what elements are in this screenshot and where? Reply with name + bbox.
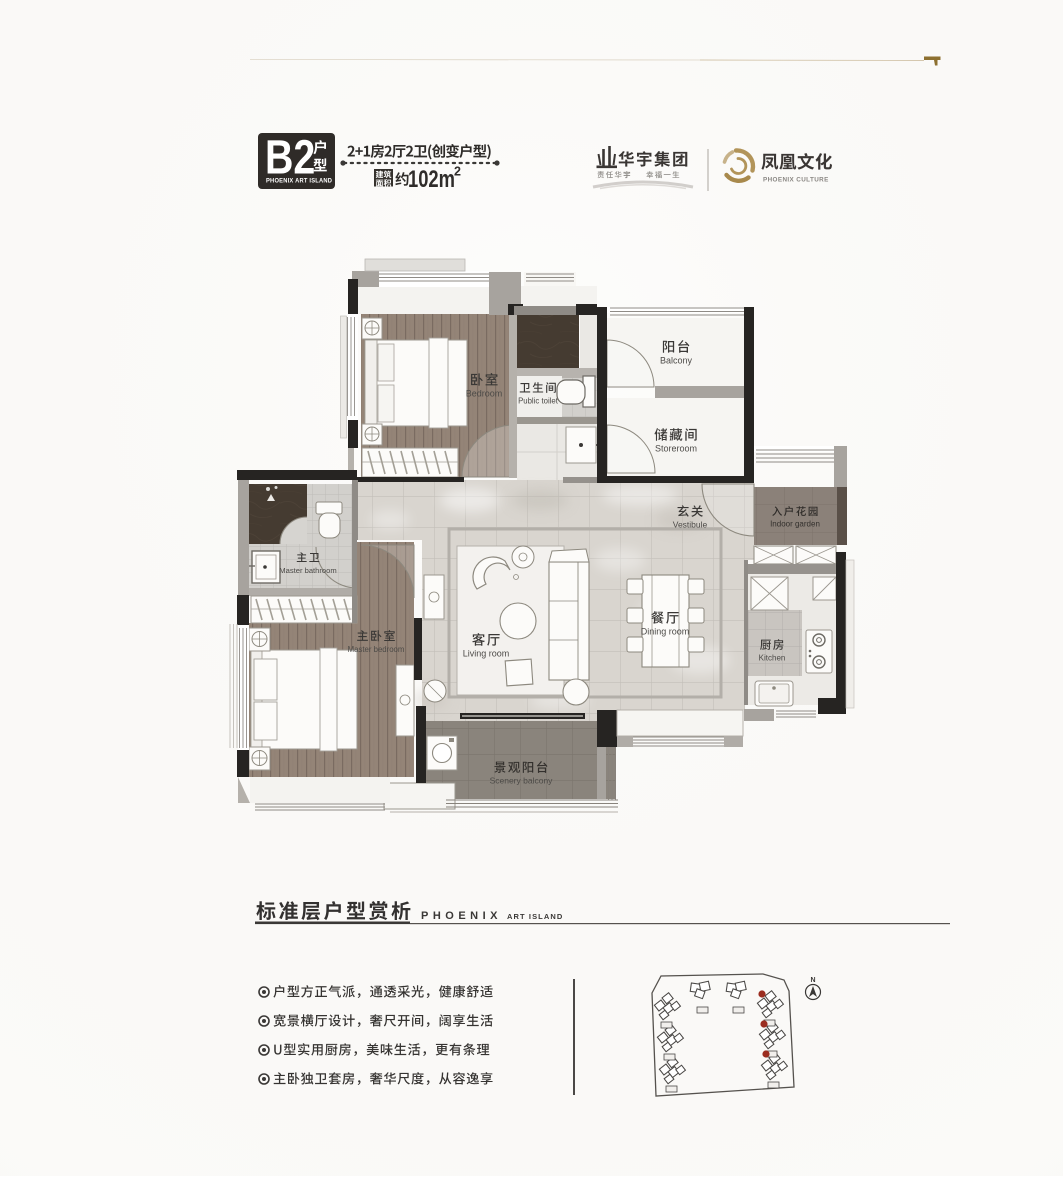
- svg-text:2: 2: [454, 165, 461, 179]
- svg-text:ART ISLAND: ART ISLAND: [507, 912, 563, 921]
- svg-text:102m: 102m: [408, 164, 455, 192]
- svg-text:Kitchen: Kitchen: [759, 654, 786, 663]
- svg-text:N: N: [810, 977, 815, 984]
- svg-text:PHOENIX: PHOENIX: [421, 910, 502, 922]
- svg-text:Dining room: Dining room: [641, 627, 690, 637]
- svg-text:PHOENIX ART ISLAND: PHOENIX ART ISLAND: [266, 177, 332, 184]
- svg-text:Balcony: Balcony: [660, 356, 693, 366]
- svg-text:Indoor garden: Indoor garden: [770, 520, 820, 529]
- svg-text:Living room: Living room: [463, 649, 510, 659]
- svg-text:Storeroom: Storeroom: [655, 444, 697, 454]
- svg-text:Scenery balcony: Scenery balcony: [490, 776, 554, 786]
- svg-text:Public toilet: Public toilet: [518, 397, 559, 406]
- svg-text:Bedroom: Bedroom: [466, 389, 503, 399]
- svg-text:Master bathroom: Master bathroom: [279, 566, 336, 575]
- svg-text:PHOENIX CULTURE: PHOENIX CULTURE: [763, 177, 829, 184]
- svg-text:Vestibule: Vestibule: [673, 520, 708, 530]
- svg-text:Master bedroom: Master bedroom: [348, 645, 405, 654]
